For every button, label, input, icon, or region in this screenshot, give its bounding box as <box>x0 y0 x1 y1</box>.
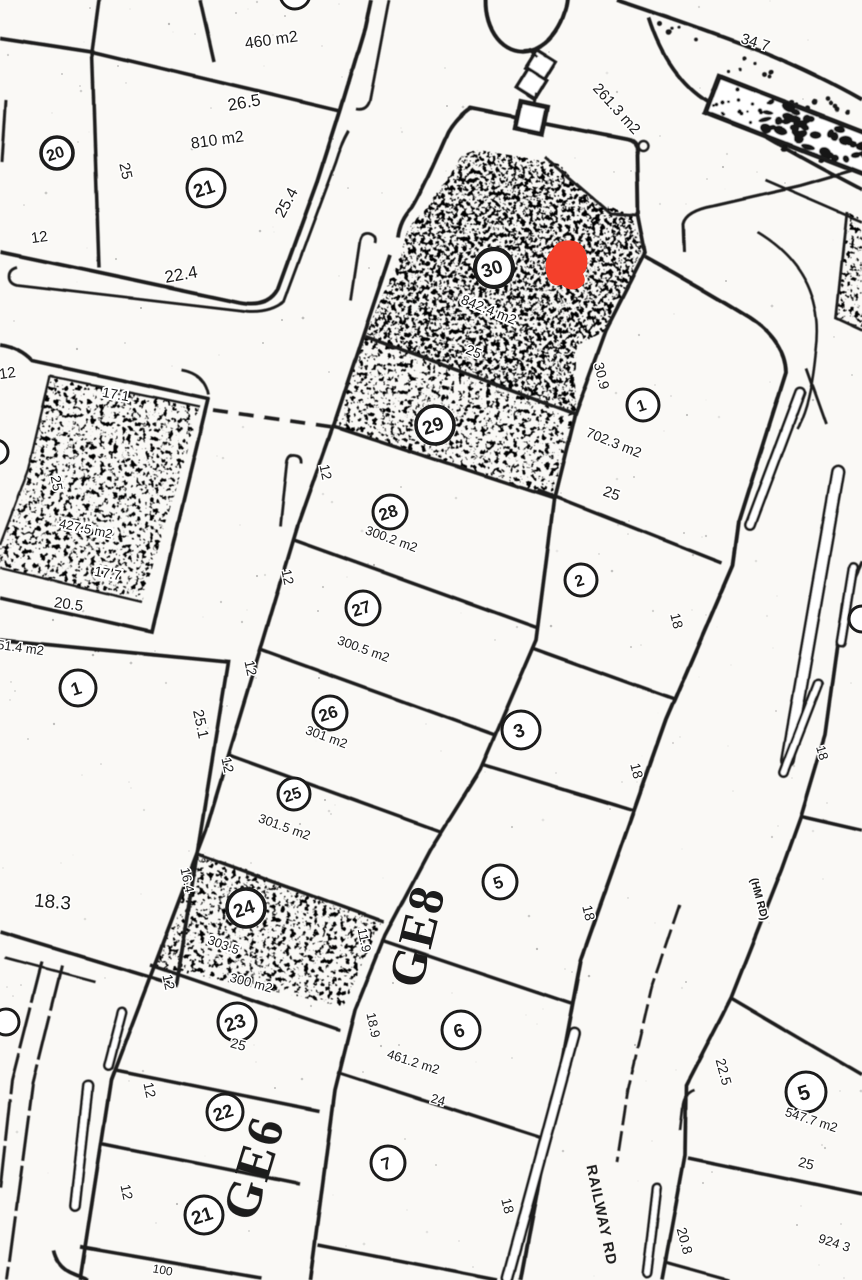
svg-text:12: 12 <box>0 364 17 383</box>
svg-text:25: 25 <box>115 161 135 181</box>
svg-text:18.3: 18.3 <box>33 890 72 914</box>
svg-text:25: 25 <box>48 474 66 492</box>
svg-text:12: 12 <box>30 228 49 247</box>
